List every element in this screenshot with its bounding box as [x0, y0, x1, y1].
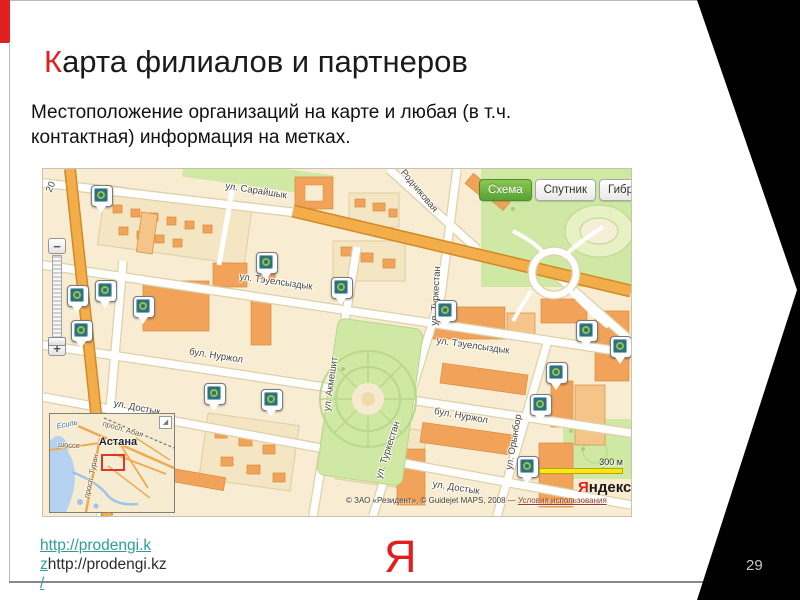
map-marker[interactable]	[67, 285, 89, 307]
map-marker[interactable]	[133, 296, 155, 318]
prodengi-plain-text: http://prodengi.kz	[48, 556, 167, 573]
branch-marker-icon	[520, 459, 534, 473]
map-marker[interactable]	[610, 336, 632, 358]
branch-marker-icon	[136, 299, 150, 313]
branch-marker-icon	[613, 339, 627, 353]
map-marker[interactable]	[530, 394, 552, 416]
branch-marker-icon	[98, 283, 112, 297]
prodengi-link-line3[interactable]: /	[40, 575, 44, 592]
map-type-button-Схема[interactable]: Схема	[479, 179, 532, 201]
branch-marker-icon	[533, 397, 547, 411]
scale-bar	[539, 468, 623, 474]
map-marker[interactable]	[71, 320, 93, 342]
page-number: 29	[746, 557, 763, 574]
branch-marker-icon	[259, 255, 273, 269]
map-marker[interactable]	[91, 185, 113, 207]
page-title: Карта филиалов и партнеров	[44, 44, 468, 80]
inset-city-label: Астана	[99, 436, 137, 448]
mini-map-inset[interactable]: Есильпросп. АбаяшоссеАстанапросп. Туран …	[49, 413, 175, 513]
map-scale: 300 м	[539, 457, 623, 474]
title-text: арта филиалов и партнеров	[62, 44, 468, 79]
branch-marker-icon	[74, 323, 88, 337]
map-type-switcher: СхемаСпутникГибрид	[479, 179, 632, 201]
map-marker[interactable]	[517, 456, 539, 478]
zoom-slider-handle[interactable]	[48, 337, 66, 346]
map-marker[interactable]	[331, 277, 353, 299]
map-type-button-Гибрид[interactable]: Гибрид	[599, 179, 632, 201]
map-marker[interactable]	[546, 362, 568, 384]
yandex-logo-first-letter: Я	[578, 479, 589, 496]
branch-marker-icon	[70, 288, 84, 302]
branch-marker-icon	[549, 365, 563, 379]
terms-of-use-link[interactable]: Условия использования	[518, 496, 607, 505]
map-marker[interactable]	[256, 252, 278, 274]
branch-marker-icon	[438, 303, 452, 317]
map-canvas[interactable]: ул. СарайшыкРодниковаяул. Тэуелсыздыкул.…	[42, 168, 632, 517]
branch-marker-icon	[334, 280, 348, 294]
yandex-letter-logo: Я	[384, 534, 417, 579]
yandex-logo-rest: ндекс	[589, 479, 632, 496]
map-marker[interactable]	[204, 383, 226, 405]
zoom-out-button[interactable]: −	[48, 238, 66, 254]
slide: Карта филиалов и партнеров Местоположени…	[0, 0, 800, 600]
inset-collapse-button[interactable]: ◢	[159, 416, 172, 429]
map-marker[interactable]	[435, 300, 457, 322]
title-accent-letter: К	[44, 44, 62, 79]
inset-label: шоссе	[58, 440, 80, 450]
branch-marker-icon	[94, 188, 108, 202]
prodengi-link-line1[interactable]: http://prodengi.k	[40, 537, 151, 554]
map-zoom-control: − +	[48, 238, 66, 356]
scale-label: 300 м	[539, 457, 623, 467]
yandex-logo[interactable]: Яндекс	[578, 479, 631, 496]
map-marker[interactable]	[576, 320, 598, 342]
branch-marker-icon	[207, 386, 221, 400]
prodengi-link-line2[interactable]: z	[40, 556, 48, 573]
accent-bar	[0, 0, 10, 43]
slide-border-top	[10, 0, 700, 1]
footer-links: http://prodengi.k zhttp://prodengi.kz /	[40, 536, 167, 593]
slide-subtitle: Местоположение организаций на карте и лю…	[31, 100, 591, 150]
map-copyright: © ЗАО «Резидент», © Guidejet MAPS, 2008 …	[346, 496, 607, 505]
copyright-text: © ЗАО «Резидент», © Guidejet MAPS, 2008 …	[346, 496, 518, 505]
branch-marker-icon	[264, 392, 278, 406]
map-marker[interactable]	[95, 280, 117, 302]
map-marker[interactable]	[261, 389, 283, 411]
slide-border-left	[9, 42, 10, 582]
map-type-button-Спутник[interactable]: Спутник	[535, 179, 596, 201]
zoom-slider-track[interactable]	[52, 255, 62, 339]
branch-marker-icon	[579, 323, 593, 337]
